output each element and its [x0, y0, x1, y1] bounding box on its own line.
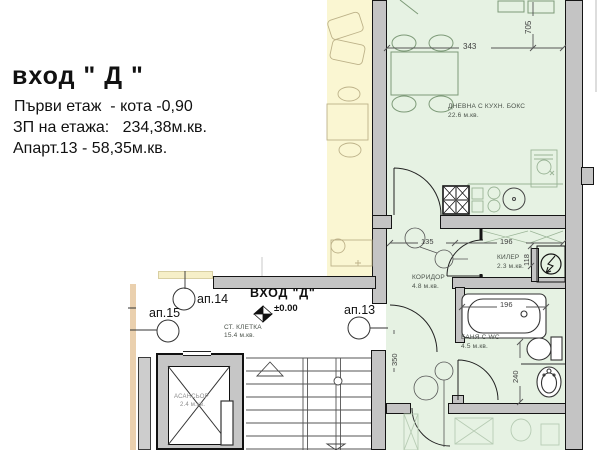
kitchen-sink-icon	[503, 188, 525, 210]
apartment-14-label: ап.14	[197, 292, 228, 306]
dim-living-width: 343	[463, 42, 476, 51]
level-marker-icon	[254, 306, 272, 322]
apartment-15-label: ап.15	[149, 306, 180, 320]
dim-entry-depth: 350	[390, 353, 399, 366]
dim-corridor-width: 135	[421, 237, 434, 246]
dim-bath-width: 196	[500, 300, 513, 309]
stair-cell-area: 15.4 м.кв.	[224, 332, 255, 340]
stair-cell-name: СТ. КЛЕТКА	[224, 324, 262, 332]
level-value: ±0.00	[274, 303, 298, 314]
living-room-name: ДНЕВНА С КУХН. БОКС	[448, 103, 525, 111]
title-floor-line: Първи етаж - кота -0,90	[14, 98, 193, 116]
corridor-name: КОРИДОР	[412, 274, 445, 282]
floor-plan: вход " Д " Първи етаж - кота -0,90 ЗП на…	[0, 0, 600, 450]
apartment-13-label: ап.13	[344, 303, 375, 317]
toilet-icon	[527, 337, 562, 360]
closet-name: КИЛЕР	[497, 254, 519, 262]
title-entrance: вход " Д "	[12, 62, 144, 91]
dim-bath-depth: 240	[511, 370, 520, 383]
corridor-area: 4.8 м.кв.	[412, 283, 439, 291]
furniture-yellow-room	[327, 11, 372, 266]
title-apartment-line: Апарт.13 - 58,35м.кв.	[13, 140, 167, 158]
dim-closet-depth: 118	[522, 254, 531, 266]
living-room-area: 22.6 м.кв.	[448, 112, 479, 120]
dim-living-depth: 705	[524, 21, 533, 34]
elevator-area: 2.4 м.кв.	[180, 402, 205, 410]
bath-area: 4.5 м.кв.	[461, 343, 488, 351]
bathroom-sink-icon	[537, 367, 561, 397]
stove-icon	[443, 186, 469, 214]
electric-panel-icon	[537, 246, 565, 282]
furniture-living-room	[391, 0, 554, 112]
closet-area: 2.3 м.кв.	[497, 263, 524, 271]
dim-closet-width: 196	[500, 237, 513, 246]
bath-name: БАНЯ С WC	[461, 334, 500, 342]
faded-room-below	[404, 414, 559, 450]
entrance-hall-label: ВХОД "Д"	[250, 286, 316, 300]
stairs	[246, 358, 371, 450]
title-area-line: ЗП на етажа: 234,38м.кв.	[13, 119, 207, 137]
elevator-name: АСАНСЬОР	[174, 394, 209, 402]
